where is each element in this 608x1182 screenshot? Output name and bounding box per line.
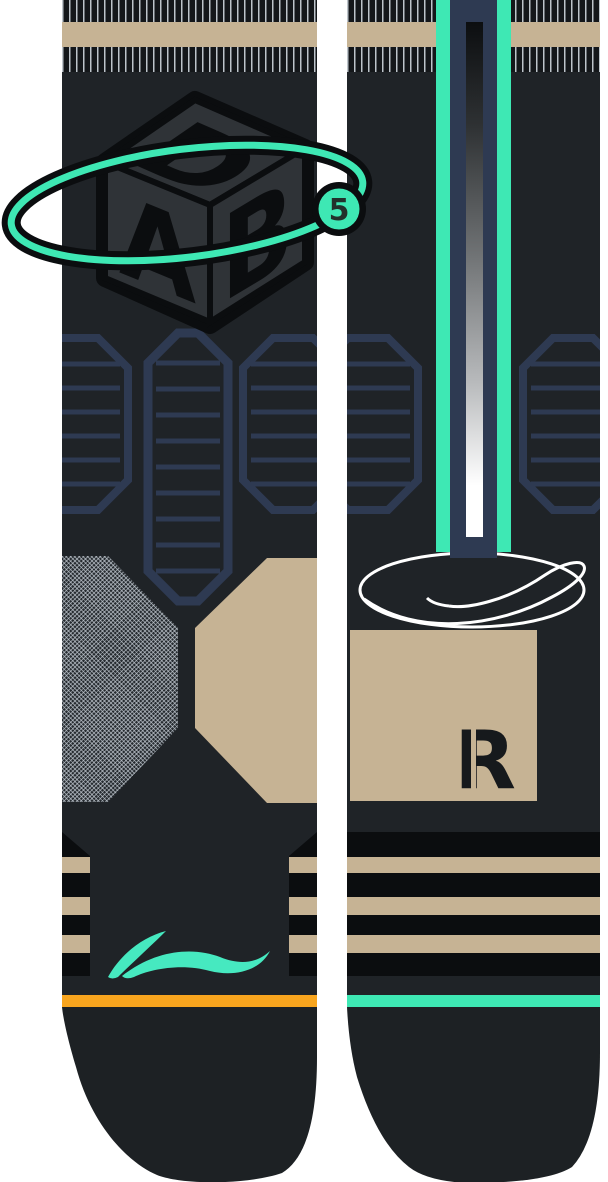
foot-tan-stripe — [347, 935, 600, 953]
dab-cube-logo: D A B 5 — [0, 60, 400, 360]
size-letter-graphic: R — [350, 630, 537, 801]
teal-accent-stripe — [347, 995, 600, 1007]
stencil-slit — [471, 725, 476, 791]
vertical-teal-stripe — [497, 0, 511, 552]
vertical-teal-stripe — [436, 0, 450, 552]
badge-5: 5 — [312, 182, 366, 236]
right-sock-toe — [347, 1007, 600, 1182]
sock-design-artboard: R D A B 5 — [0, 0, 608, 1182]
badge-number: 5 — [329, 193, 350, 228]
foot-tan-stripe — [347, 857, 600, 873]
left-sock-toe — [62, 1007, 317, 1182]
size-letter: R — [454, 714, 516, 801]
foot-tan-stripe — [347, 897, 600, 915]
vertical-gradient-stripe — [466, 22, 483, 537]
size-patch: R — [350, 630, 537, 801]
li-ning-swoosh-icon — [108, 925, 270, 980]
ellipse-swoosh-icon — [347, 545, 600, 640]
